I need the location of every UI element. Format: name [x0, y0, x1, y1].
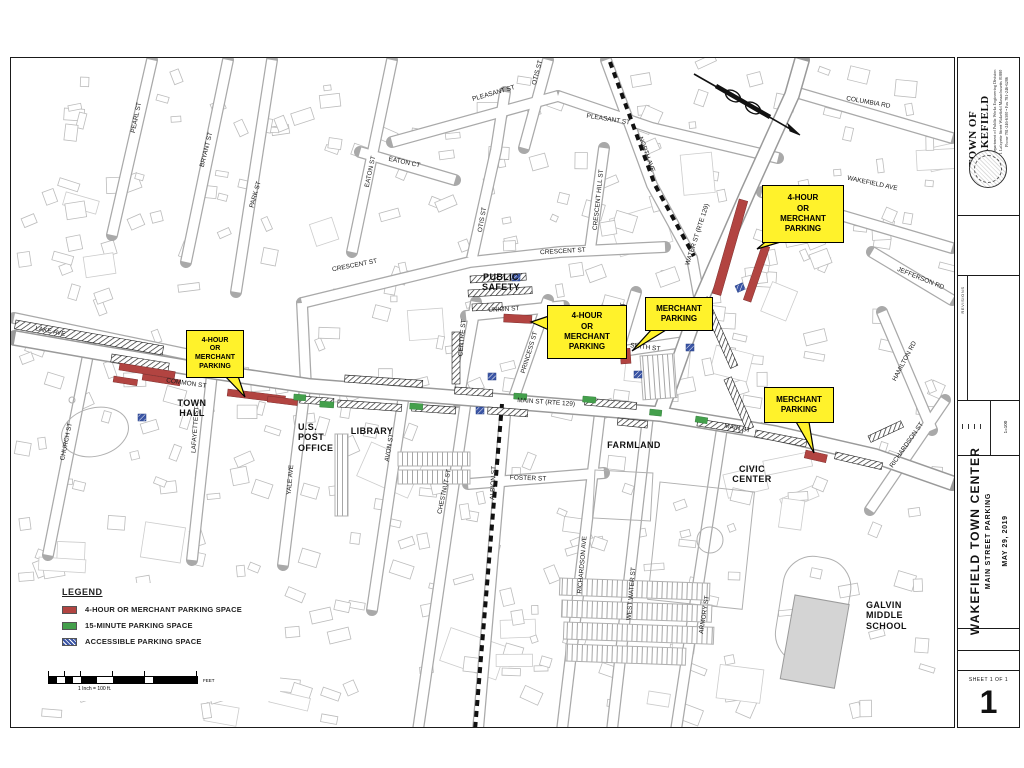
sheet-number: 1: [958, 684, 1019, 721]
agency-dept-line: Department of Public Works Engineering D…: [992, 70, 997, 155]
legend-item-blue: ACCESSIBLE PARKING SPACE: [62, 637, 280, 646]
project-title-block: WAKEFIELD TOWN CENTER MAIN STREET PARKIN…: [958, 457, 1018, 625]
callout-4hour-merchant-parking: 4-HOUR OR MERCHANT PARKING: [186, 330, 244, 378]
legend-item-green: 15-MINUTE PARKING SPACE: [62, 621, 280, 630]
project-subtitle: MAIN STREET PARKING: [985, 493, 992, 589]
agency-phone-line: Phone 781-246-6300 • Fax 781-246-6286: [1004, 77, 1009, 147]
sheet-label: SHEET 1 OF 1: [958, 677, 1019, 683]
callout-merchant-parking: MERCHANT PARKING: [764, 387, 834, 423]
revisions-label: REVISIONS: [960, 286, 965, 313]
town-seal: [969, 150, 1007, 188]
legend-title: LEGEND: [62, 587, 280, 597]
green-swatch: [62, 622, 77, 630]
titleblock-sheet-row: SHEET 1 OF 1 1: [958, 671, 1019, 727]
scale-unit-label: FEET: [203, 678, 215, 683]
place-label-library: LIBRARY: [342, 426, 402, 436]
scale-bar: FEET 1 Inch = 100 ft.: [48, 671, 248, 693]
scale-caption: 1 Inch = 100 ft.: [78, 686, 111, 692]
place-label-civic-center: CIVIC CENTER: [718, 464, 786, 485]
project-title: WAKEFIELD TOWN CENTER: [968, 447, 982, 635]
plan-sheet: PEARL ST BRYANT ST PARK ST EATON ST EATO…: [0, 0, 1024, 768]
revisions-block: REVISIONS: [957, 280, 967, 320]
legend-item-label: 4-HOUR OR MERCHANT PARKING SPACE: [85, 605, 242, 614]
place-label-town-hall: TOWN HALL: [155, 398, 229, 419]
place-label-public-safety: PUBLIC SAFETY: [462, 272, 540, 293]
place-label-farmland: FARMLAND: [596, 440, 672, 450]
callout-4hour-merchant-parking: 4-HOUR OR MERCHANT PARKING: [762, 185, 844, 243]
legend-item-label: 15-MINUTE PARKING SPACE: [85, 621, 193, 630]
agency-address-line: 1 Lafayette Street Wakefield Massachuset…: [998, 70, 1003, 155]
scale-block: 1=100: [1001, 407, 1009, 447]
legend-item-label: ACCESSIBLE PARKING SPACE: [85, 637, 202, 646]
accessible-swatch: [62, 638, 77, 646]
titleblock-empty-row: [958, 216, 1019, 276]
place-label-galvin-middle-school: GALVIN MIDDLE SCHOOL: [866, 600, 938, 631]
titleblock-empty-row: [958, 651, 1019, 671]
legend: LEGEND 4-HOUR OR MERCHANT PARKING SPACE …: [48, 583, 280, 701]
red-swatch: [62, 606, 77, 614]
callout-4hour-merchant-parking: 4-HOUR OR MERCHANT PARKING: [547, 305, 627, 359]
scale-label: 1=100: [1003, 421, 1008, 434]
legend-item-red: 4-HOUR OR MERCHANT PARKING SPACE: [62, 605, 280, 614]
project-date: MAY 29, 2019: [1002, 515, 1009, 566]
callout-merchant-parking: MERCHANT PARKING: [645, 297, 713, 331]
